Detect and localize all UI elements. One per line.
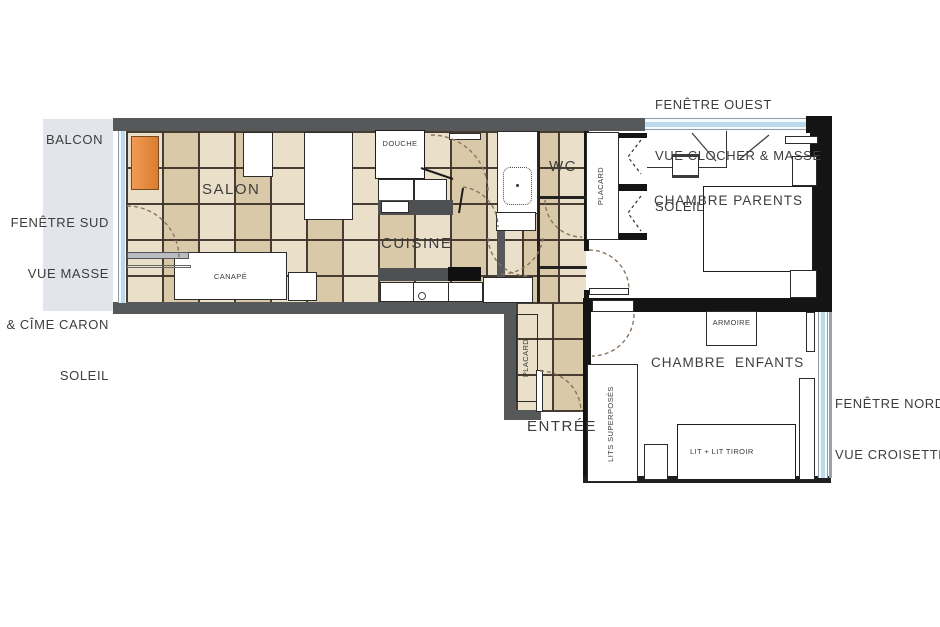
bed-with-drawer-label: LIT + LIT TIROIR: [690, 447, 754, 456]
annotation-south-line2: VUE MASSE: [0, 265, 109, 282]
wall-corridor-left: [504, 310, 516, 420]
side-table: [288, 272, 317, 301]
partition-wc-south: [539, 196, 587, 199]
toilet: [503, 167, 532, 205]
window-north-band: [818, 312, 828, 478]
entree-label: ENTRÉE: [527, 419, 597, 435]
enfants-desk-strip: [799, 378, 815, 480]
annotation-west: FENÊTRE OUEST VUE CLOCHER & MASSE SOLEIL: [655, 62, 822, 249]
window-north-outer-line: [829, 312, 832, 478]
annotation-south-line3: & CÎME CARON: [0, 316, 109, 333]
armoire-label: ARMOIRE: [713, 318, 751, 327]
orange-sideboard: [131, 136, 159, 190]
partition-vestibule: [539, 266, 587, 269]
closet-stub-mid: [619, 184, 647, 191]
entry-door-leaf: [536, 370, 543, 412]
salon-label: SALON: [202, 182, 260, 198]
parents-door-leaf: [589, 288, 629, 295]
kitchen-cabinets: [380, 282, 483, 302]
annotation-north: FENÊTRE NORD VUE CROISETTE: [835, 361, 940, 497]
fridge: [483, 277, 533, 303]
window-sill-line: [127, 265, 191, 268]
bunk-beds-label: LITS SUPERPOSÉS: [606, 369, 618, 479]
parents-nightstand-bottom: [790, 270, 817, 298]
shower-label: DOUCHE: [376, 139, 424, 148]
closet-stub-top: [619, 133, 647, 138]
enfants-door-swing: [592, 314, 634, 356]
kitchen-hob-black: [448, 267, 481, 281]
dining-table: [304, 132, 353, 220]
wall-shelf: [449, 133, 481, 140]
annotation-west-line3: SOLEIL: [655, 198, 822, 215]
wardrobe-armoire: ARMOIRE: [706, 311, 757, 346]
wall-salon-bottom: [113, 302, 516, 314]
cuisine-label: CUISINE: [381, 236, 452, 252]
wc-sink: [496, 212, 536, 231]
kitchen-island-divider: [413, 180, 415, 200]
annotation-north-line1: FENÊTRE NORD: [835, 395, 940, 412]
hall-closet-label: PLACARD: [521, 318, 533, 398]
annotation-south: FENÊTRE SUD VUE MASSE & CÎME CARON SOLEI…: [0, 180, 109, 418]
enfants-nightstand: [644, 444, 668, 480]
chambre-enfants-label: CHAMBRE ENFANTS: [651, 356, 804, 370]
bifold-doors-bottom: [628, 196, 641, 231]
kitchen-sink-knob: [418, 292, 426, 300]
enfants-radiator: [806, 312, 815, 352]
parents-door-swing: [589, 250, 629, 290]
annotation-north-line2: VUE CROISETTE: [835, 446, 940, 463]
annotation-south-line1: FENÊTRE SUD: [0, 214, 109, 231]
balcon-label: BALCON: [46, 131, 103, 148]
tv-unit: [243, 132, 273, 177]
annotation-west-line2: VUE CLOCHER & MASSE: [655, 147, 822, 164]
window-south-band: [118, 131, 126, 303]
radiator-under-window: [127, 252, 189, 259]
sofa: CANAPÉ: [174, 252, 287, 300]
floor-plan-canvas: CANAPÉ DOUCHE PLACARD PLACARD ARMOIRE LI: [0, 0, 940, 627]
parents-closet-label: PLACARD: [596, 141, 608, 231]
toilet-drain-dot: [516, 184, 519, 187]
closet-stub-bottom: [619, 233, 647, 240]
bifold-doors-top: [628, 140, 641, 174]
enfants-door-leaf: [592, 300, 634, 312]
shower-room: DOUCHE: [375, 130, 425, 179]
kitchen-island-cabinet: [381, 201, 409, 213]
annotation-south-line4: SOLEIL: [0, 367, 109, 384]
kitchen-cabinet-divider-1: [413, 283, 414, 301]
wc-label: WC: [549, 159, 577, 175]
kitchen-cabinet-divider-2: [448, 283, 449, 301]
bed-with-drawer: LIT + LIT TIROIR: [677, 424, 796, 480]
kitchen-counter-dark: [378, 268, 448, 281]
annotation-west-line1: FENÊTRE OUEST: [655, 96, 822, 113]
sofa-label: CANAPÉ: [214, 272, 247, 281]
